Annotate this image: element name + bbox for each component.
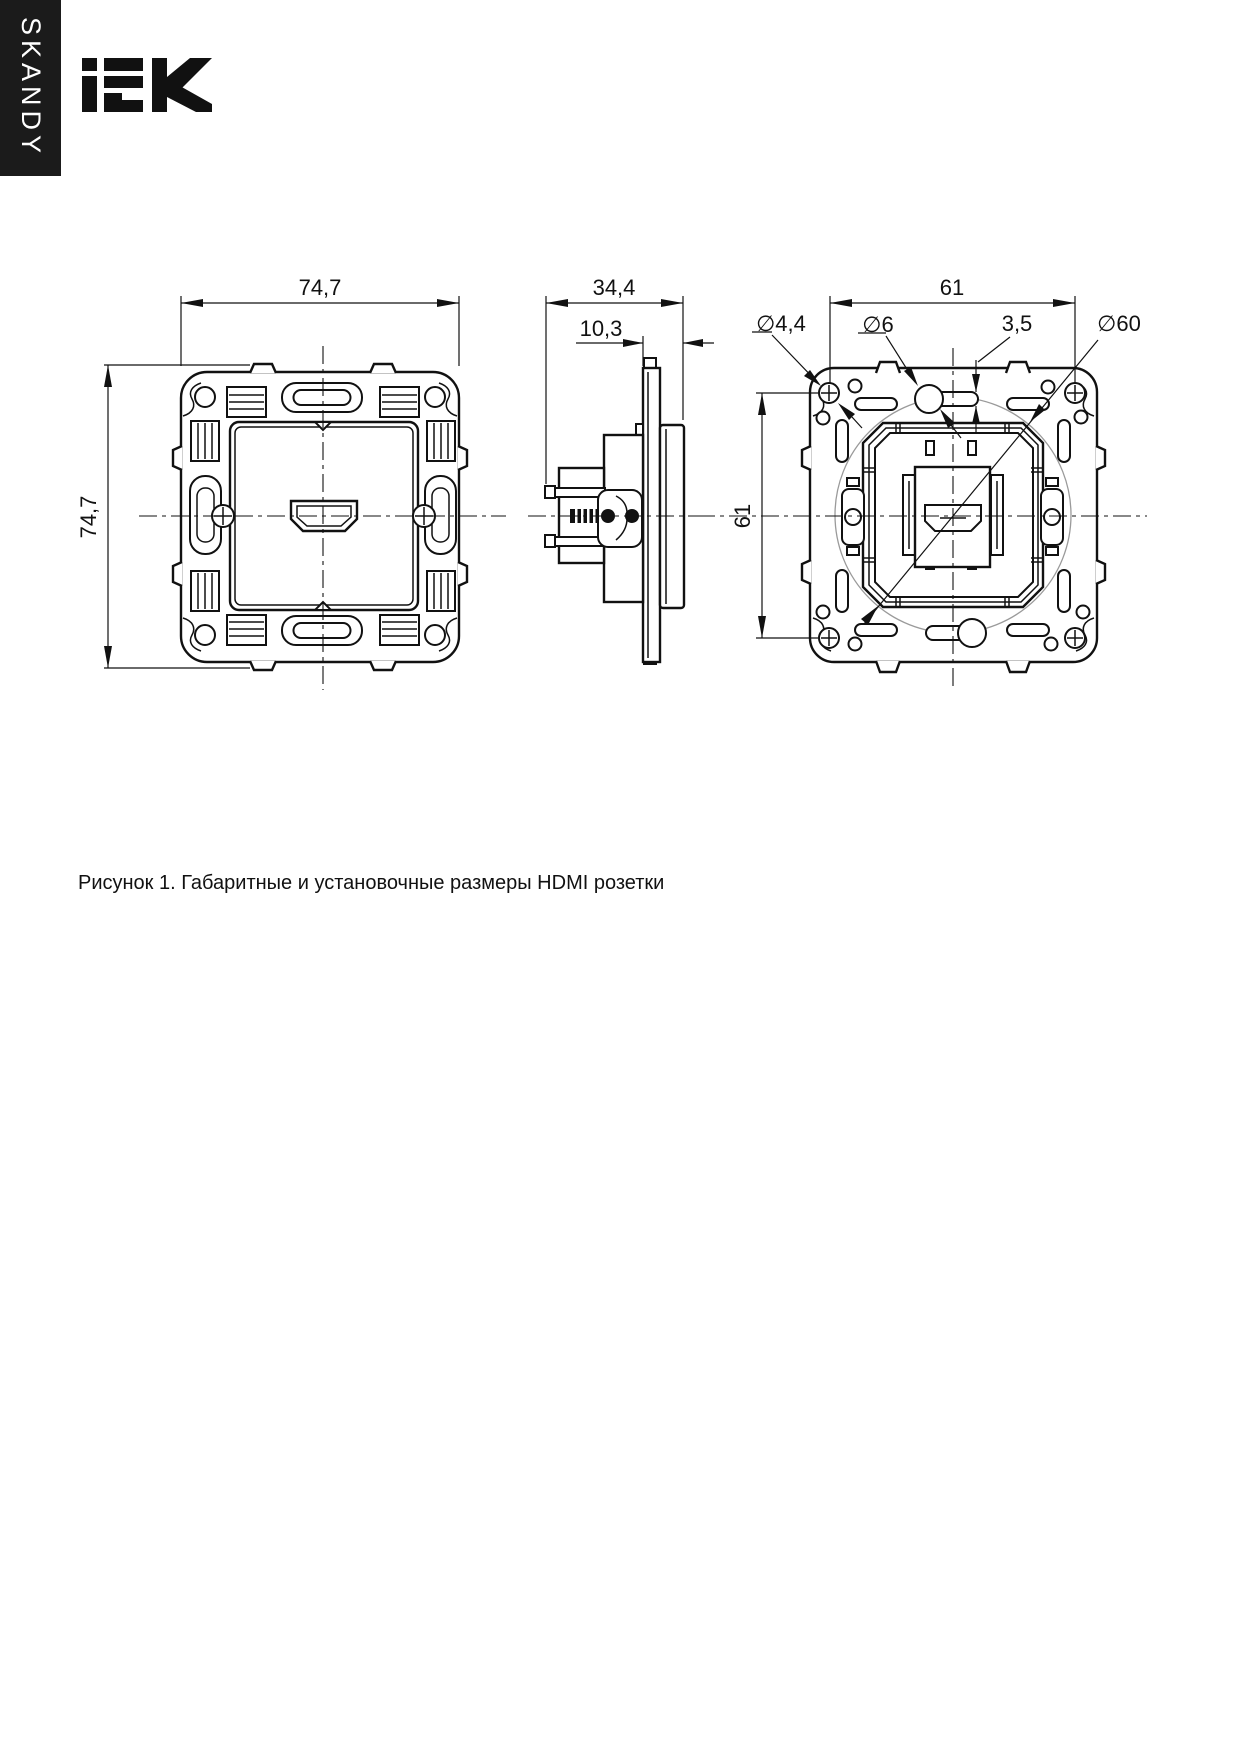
front-corner-hole — [195, 387, 215, 407]
side-depth-label: 34,4 — [593, 275, 636, 300]
back-width-label: 61 — [940, 275, 964, 300]
front-view: 74,7 74,7 — [76, 275, 506, 690]
back-view: 61 61 ∅4,4 — [697, 275, 1147, 686]
side-mount-frame — [643, 368, 660, 662]
back-hole-label: ∅6 — [862, 312, 893, 337]
back-height-label: 61 — [730, 504, 755, 528]
manual-page: SKANDY IEK — [0, 0, 1239, 1746]
iek-logo-icon: IEK — [82, 58, 212, 112]
front-width-label: 74,7 — [299, 275, 342, 300]
back-mount-circle-label: ∅60 — [1097, 311, 1141, 336]
figure-caption: Рисунок 1. Габаритные и установочные раз… — [78, 872, 664, 895]
side-offset-label: 10,3 — [580, 316, 623, 341]
back-screw-hole-label: ∅4,4 — [756, 311, 806, 336]
figure-1-drawing: IEK — [0, 0, 1239, 950]
front-height-label: 74,7 — [76, 496, 101, 539]
front-width-dimension: 74,7 — [181, 275, 459, 366]
side-view: 34,4 10,3 — [528, 275, 714, 664]
back-slot-label: 3,5 — [1002, 311, 1033, 336]
